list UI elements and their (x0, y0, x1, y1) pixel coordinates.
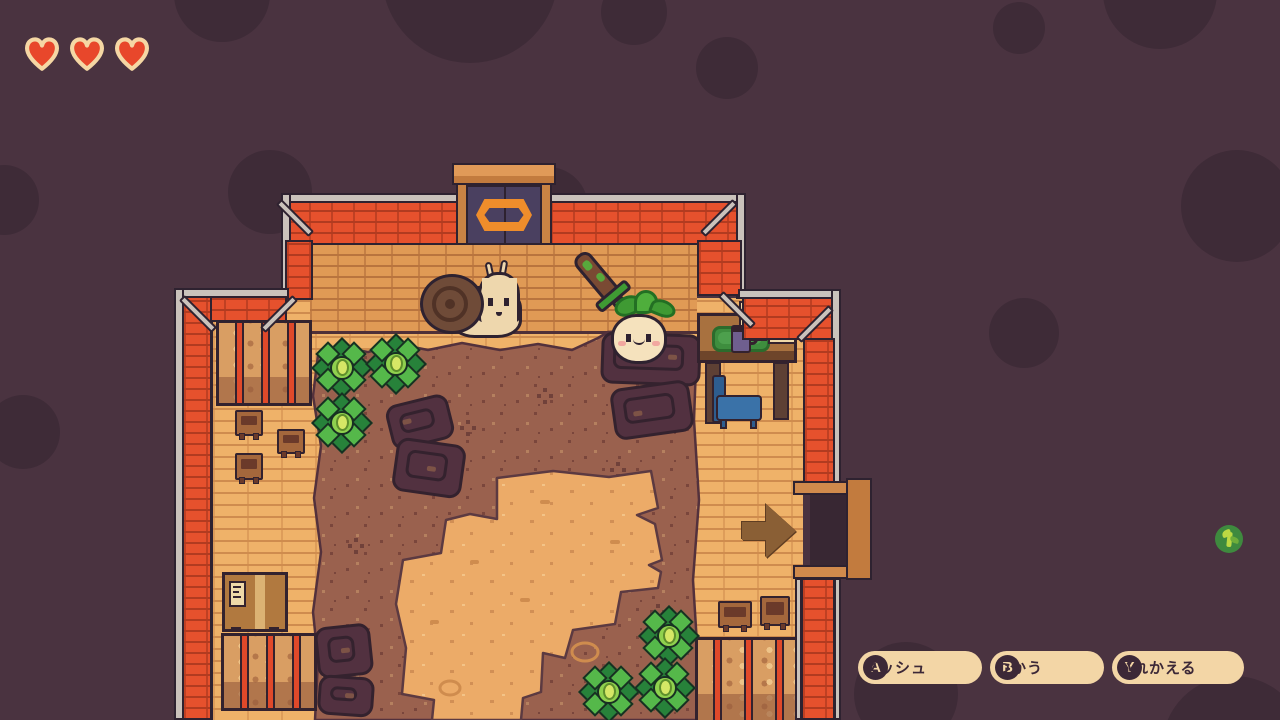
dirt-mound (313, 622, 374, 680)
left-wing-west-wall (182, 296, 212, 720)
button-prompt-label: つかう (995, 657, 1043, 678)
heart-icon (112, 34, 152, 72)
cabbage-plant (639, 664, 691, 712)
button-prompt-dash[interactable]: A ダッシュ (858, 651, 982, 684)
east-door-post (846, 478, 872, 580)
snail-shell (420, 274, 484, 334)
hay-pen (216, 320, 312, 406)
button-prompt-label: いれかえる (1117, 657, 1197, 678)
west-wall-upper (285, 240, 313, 300)
east-doorway-opening (810, 491, 850, 569)
sprout-badge (1215, 525, 1243, 553)
dirt-mound (609, 379, 695, 442)
bg-dot (993, 2, 1045, 54)
cabbage-plant (583, 668, 635, 716)
health-hearts (22, 34, 162, 74)
button-prompt-swap[interactable]: Y いれかえる (1112, 651, 1244, 684)
right-wing-east-wall (803, 338, 835, 485)
door-glyph (476, 199, 504, 231)
cabbage-plant (316, 399, 368, 447)
wooden-stool (718, 601, 752, 628)
blue-chair (710, 375, 762, 431)
wooden-stool (277, 429, 305, 454)
bg-dot (1103, 0, 1217, 49)
player-character (570, 240, 700, 380)
dirt-mound (391, 436, 468, 499)
east-wall-lower (801, 578, 835, 720)
player-cheek (652, 341, 660, 346)
wooden-stool (760, 596, 790, 626)
wooden-stool (235, 410, 263, 436)
east-wall-upper (697, 240, 742, 296)
north-double-door (452, 163, 556, 245)
player-eye (646, 334, 651, 342)
door-panels (466, 185, 542, 245)
bg-dot (696, 37, 758, 99)
button-prompt-use[interactable]: B つかう (990, 651, 1104, 684)
snail-eye (488, 298, 493, 306)
wall-outline (834, 578, 841, 720)
cabbage-plant (643, 612, 695, 660)
door-glyph (504, 199, 532, 231)
bg-dot (989, 298, 1059, 368)
bg-dot (174, 0, 270, 42)
game-screen: A ダッシュ B つかう Y いれかえる (0, 0, 1280, 720)
cabbage-plant (370, 340, 422, 388)
dirt-mound (317, 674, 376, 718)
bg-dot (0, 165, 39, 235)
desk-leg (773, 362, 789, 420)
wooden-stool (235, 453, 263, 480)
door-lintel (452, 163, 556, 185)
hay-pen (221, 633, 317, 711)
bg-dot (601, 0, 667, 45)
hay-pen (695, 637, 800, 720)
bg-dot (1181, 150, 1280, 262)
player-eye (626, 334, 631, 342)
bg-dot (0, 395, 60, 469)
snail (420, 256, 524, 342)
button-prompt-label: ダッシュ (863, 657, 927, 678)
exit-arrow (742, 504, 796, 558)
player-cheek (618, 341, 626, 346)
heart-icon (22, 34, 62, 72)
cardboard-box (222, 572, 288, 632)
snail-eye (504, 298, 509, 306)
cabbage-plant (316, 344, 368, 392)
bg-dot (382, 0, 558, 63)
heart-icon (67, 34, 107, 72)
